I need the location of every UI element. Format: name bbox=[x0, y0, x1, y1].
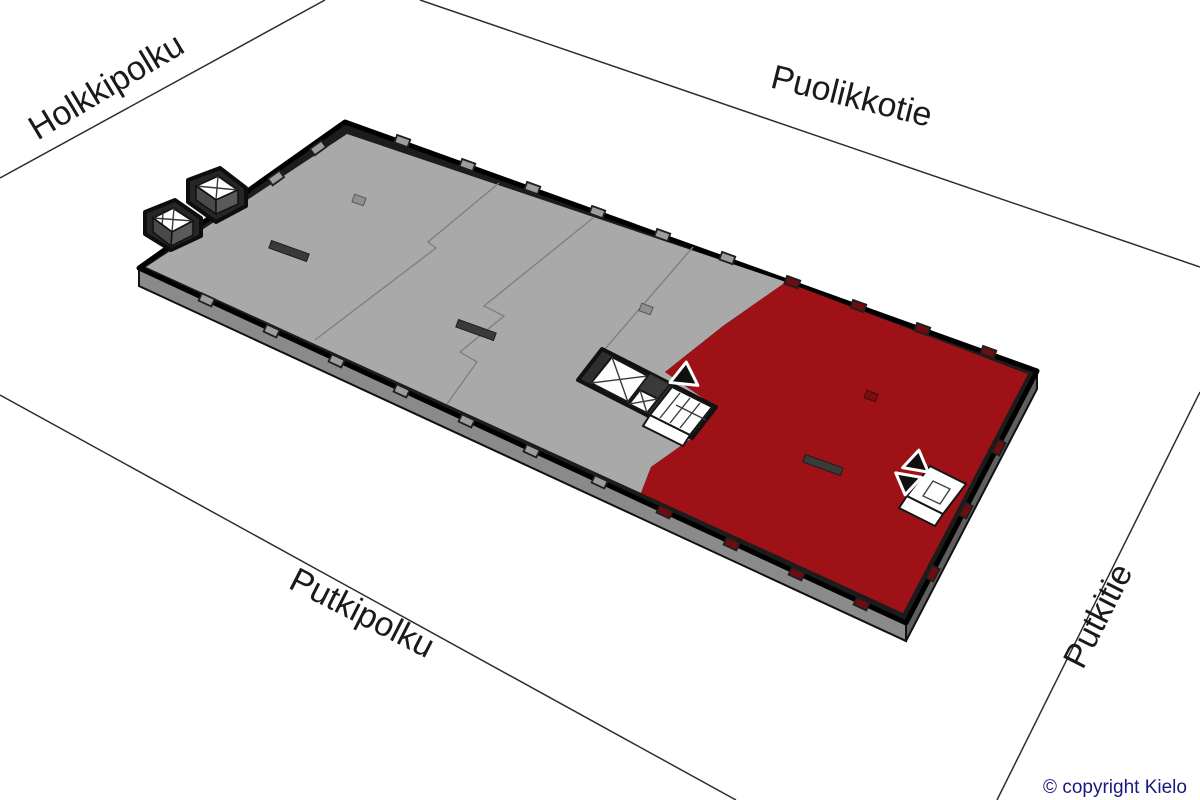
street-label-putkipolku: Putkipolku bbox=[283, 561, 440, 666]
street-line-holkkipolku bbox=[0, 0, 325, 178]
copyright-label: © copyright Kielo bbox=[1043, 777, 1187, 798]
site-map: Holkkipolku Puolikkotie Putkipolku Putki… bbox=[0, 0, 1200, 800]
street-label-puolikkotie: Puolikkotie bbox=[767, 58, 936, 135]
street-label-holkkipolku: Holkkipolku bbox=[22, 26, 191, 148]
street-label-putkitie: Putkitie bbox=[1056, 558, 1140, 675]
